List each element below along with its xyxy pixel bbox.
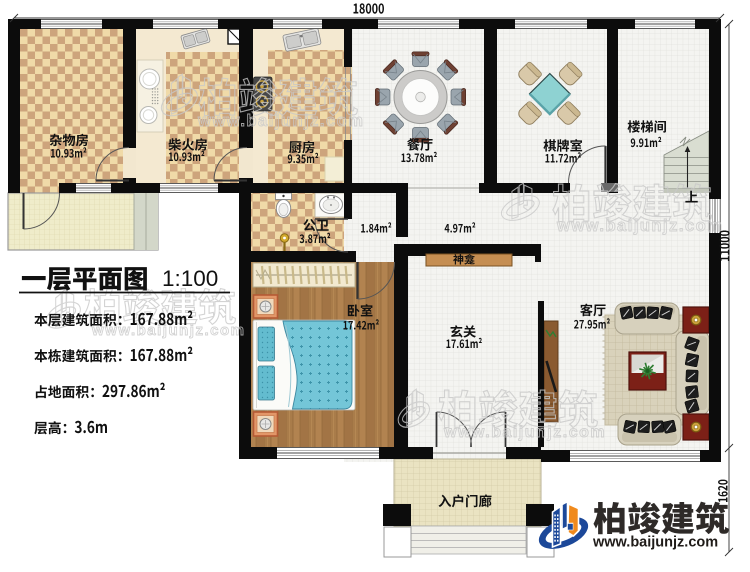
- svg-text:www.baijunjz.com: www.baijunjz.com: [197, 112, 364, 130]
- svg-text:www.baijunjz.com: www.baijunjz.com: [556, 217, 723, 235]
- svg-text:www.baijunjz.com: www.baijunjz.com: [443, 424, 606, 441]
- svg-text:www.baijunjz.com: www.baijunjz.com: [592, 535, 718, 551]
- svg-text:1:100: 1:100: [162, 266, 218, 291]
